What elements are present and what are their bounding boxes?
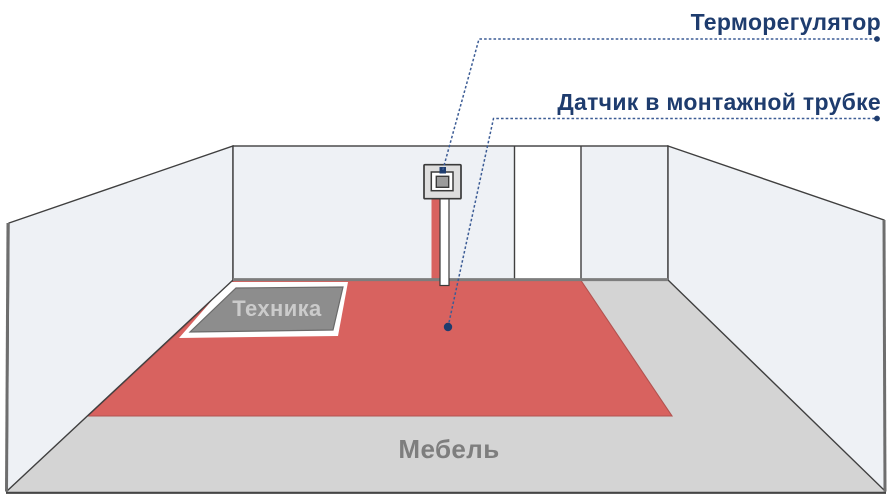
- sensor-label: Датчик в монтажной трубке: [557, 89, 881, 115]
- sensor-point: [444, 323, 452, 331]
- underfloor-heating-scheme: Терморегулятор Датчик в монтажной трубке…: [0, 0, 890, 500]
- right-wall-outer-edge: [884, 220, 885, 492]
- thermostat-label: Терморегулятор: [691, 9, 881, 35]
- thermostat-callout-dot: [874, 36, 880, 42]
- furniture-label: Мебель: [398, 434, 499, 464]
- heating-cable: [432, 198, 441, 280]
- thermostat-screen: [436, 176, 448, 187]
- sensor-callout-dot: [874, 116, 880, 122]
- left-wall-outer-edge: [7, 223, 9, 492]
- sensor-mounting-tube: [440, 198, 449, 286]
- door-opening: [515, 147, 582, 280]
- room-diagram: Терморегулятор Датчик в монтажной трубке…: [0, 0, 890, 500]
- appliance-label: Техника: [232, 296, 322, 321]
